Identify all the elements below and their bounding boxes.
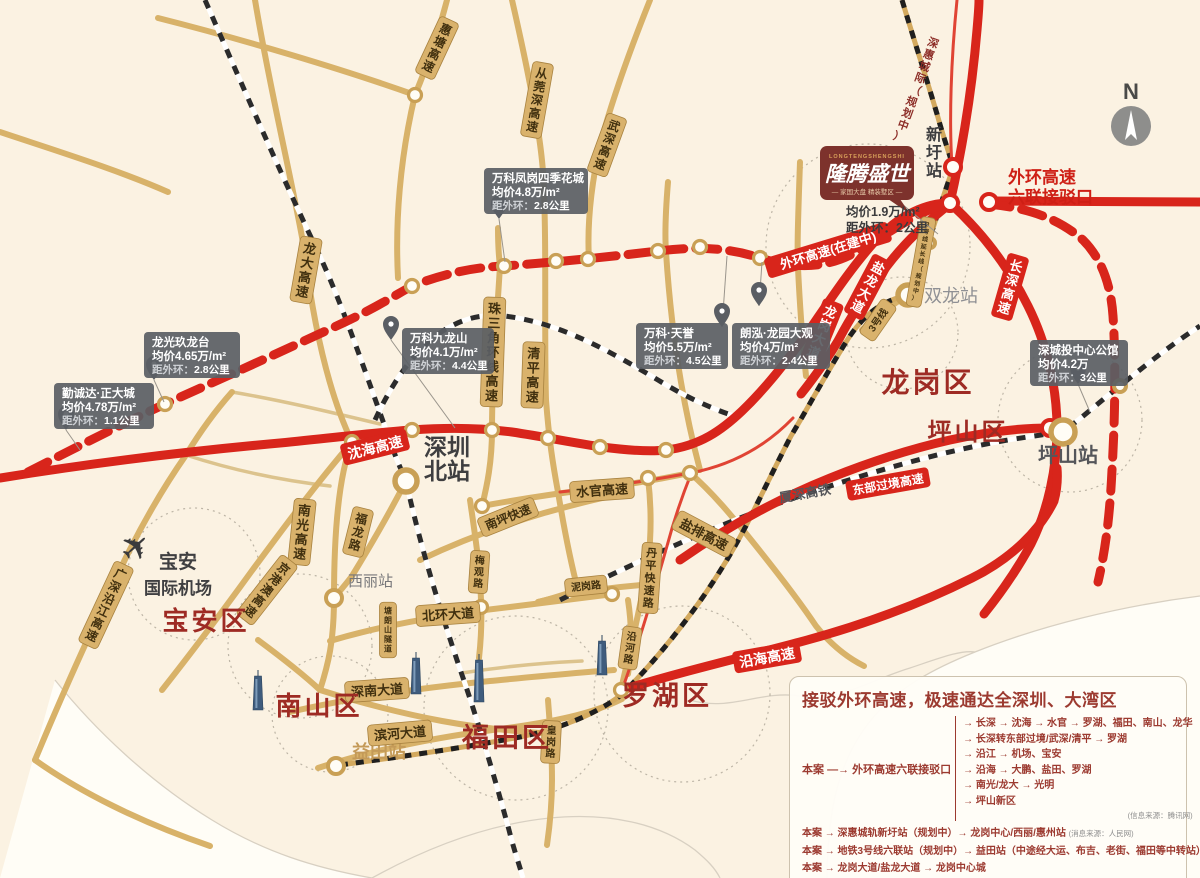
callout-distance: 距外环：2.4公里 xyxy=(740,354,818,367)
callout-distance: 距外环：1.1公里 xyxy=(62,414,140,427)
callout-distance: 距外环：4.5公里 xyxy=(644,354,722,367)
junction-ring xyxy=(486,424,499,437)
legend-branch-1: → 长深转东部过境/武深/清平 → 罗湖 xyxy=(963,732,1192,748)
callout-price: 均价4.78万/m² xyxy=(62,400,136,414)
skyscraper-body xyxy=(597,641,607,675)
road-label-武深高速: 武深高速 xyxy=(587,112,628,177)
road-label-清平高速: 清平高速 xyxy=(521,342,545,409)
junction-ring xyxy=(684,467,697,480)
callout-price: 均价4.1万/m² xyxy=(410,345,478,359)
district-label-罗湖区: 罗湖区 xyxy=(622,681,712,711)
legend-branches-source: (信息来源：腾讯网) xyxy=(963,810,1192,821)
callout-勤诚达·正大城: 勤诚达·正大城均价4.78万/m²距外环：1.1公里 xyxy=(54,383,154,450)
junction-ring xyxy=(476,500,489,513)
legend-hub-label: 本案 —→ 外环高速六联接驳口 xyxy=(802,761,951,777)
skyscraper-body xyxy=(474,660,484,702)
interchange-ring xyxy=(981,194,997,210)
compass-n-label: N xyxy=(1123,79,1139,104)
callout-distance: 距外环：2.8公里 xyxy=(492,199,570,212)
legend-hub: 本案 —→ 外环高速六联接驳口 → 长深 → 沈海 → 水官 → 罗湖、福田、南… xyxy=(802,716,1174,821)
project-logo: LONGTENGSHENGSHI隆腾盛世— 家国大盘 精装墅区 —均价1.9万/… xyxy=(820,146,938,235)
legend-route-note: (消息来源：人民网) xyxy=(1069,829,1134,838)
legend-branches: → 长深 → 沈海 → 水官 → 罗湖、福田、南山、龙华→ 长深转东部过境/武深… xyxy=(955,716,1192,821)
station-label: 站 xyxy=(926,161,942,180)
road-minor xyxy=(186,455,330,486)
road-expressway-red xyxy=(950,203,1057,614)
skyscraper-facet xyxy=(255,679,257,708)
interchange-label-line1: 外环高速 xyxy=(1008,167,1076,187)
road-label-沿海高速: 沿海高速 xyxy=(732,640,803,673)
district-label-福田区: 福田区 xyxy=(461,723,552,753)
district-label-坪山区: 坪山区 xyxy=(928,419,1009,446)
station-label: 双龙站 xyxy=(924,286,978,306)
junction-ring xyxy=(159,398,172,411)
road-minor xyxy=(232,392,380,424)
project-logo-cn: 隆腾盛世 xyxy=(825,162,912,186)
interchange-label-line2: 六联接驳口 xyxy=(1008,187,1093,207)
station-ring xyxy=(395,470,417,492)
junction-ring xyxy=(498,260,511,273)
station-label: 西丽站 xyxy=(348,573,393,590)
callout-price: 均价4.8万/m² xyxy=(492,185,560,199)
callout-distance: 距外环：3公里 xyxy=(1038,371,1107,384)
legend-route-0: 本案 → 深惠城轨新圩站（规划中）→ 龙岗中心/西丽/惠州站 (消息来源：人民网… xyxy=(802,825,1174,843)
callout-万科·天誉: 万科·天誉均价5.5万/m²距外环：4.5公里 xyxy=(636,256,730,369)
legend-hub-from: 本案 xyxy=(802,764,824,776)
skyscraper-facet xyxy=(476,663,478,700)
skyscraper-icon xyxy=(411,652,421,694)
junction-ring xyxy=(642,472,655,485)
station-益田站: 益田站 xyxy=(328,741,406,774)
project-logo-tagline: — 家国大盘 精装墅区 — xyxy=(832,187,903,196)
skyscraper-facet xyxy=(413,661,415,692)
callout-name: 万科·天誉 xyxy=(643,326,694,340)
road-label-龙大高速: 龙大高速 xyxy=(289,236,322,305)
legend-route-2: 本案 → 龙岗大道/盐龙大道 → 龙岗中心城 xyxy=(802,860,1174,878)
skyscraper-icon xyxy=(597,635,607,675)
road-label-梅观路: 梅观路 xyxy=(468,550,490,594)
road-label-text: 广深沿江高速 xyxy=(82,564,129,644)
legend-branch-5: → 坪山新区 xyxy=(963,794,1192,810)
callout-name: 万科九龙山 xyxy=(409,331,468,345)
legend-panel: 接驳外环高速，极速通达全深圳、大湾区 本案 —→ 外环高速六联接驳口 → 长深 … xyxy=(789,676,1187,878)
road-label-沿河路: 沿河路 xyxy=(618,626,643,671)
road-label-text: 塘朗山隧道 xyxy=(384,605,392,653)
junction-ring xyxy=(406,424,419,437)
road-label-广深沿江高速: 广深沿江高速 xyxy=(78,560,135,650)
project-distance: 距外环：2公里 xyxy=(846,220,928,235)
road-expressway-gold xyxy=(258,640,320,690)
callout-price: 均价4.2万 xyxy=(1038,357,1089,371)
location-pin-hole xyxy=(719,308,724,313)
station-label: 北站 xyxy=(424,458,470,484)
callout-name: 勤诚达·正大城 xyxy=(62,386,135,400)
legend-branch-0: → 长深 → 沈海 → 水官 → 罗湖、福田、南山、龙华 xyxy=(963,716,1192,732)
map-stage: 深圳北站西丽站益田站双龙站坪山站新圩站惠塘高速从莞深高速武深高速龙大高速珠三角环… xyxy=(0,0,1200,878)
junction-ring xyxy=(406,280,419,293)
callout-connector xyxy=(1078,384,1090,412)
legend-routes: 本案 → 深惠城轨新圩站（规划中）→ 龙岗中心/西丽/惠州站 (消息来源：人民网… xyxy=(802,825,1174,878)
location-pin-hole xyxy=(756,287,761,292)
skyscraper-body xyxy=(253,676,263,710)
junction-ring xyxy=(582,253,595,266)
callout-name: 万科凤岗四季花城 xyxy=(491,171,584,185)
road-label-塘朗山隧道: 塘朗山隧道 xyxy=(380,602,397,658)
road-label-惠塘高速: 惠塘高速 xyxy=(414,15,459,80)
station-ring xyxy=(945,159,961,175)
skyscraper-icon xyxy=(253,670,263,710)
road-label-南光高速: 南光高速 xyxy=(288,498,317,566)
legend-hub-arrow: —→ xyxy=(827,764,849,776)
location-pin-hole xyxy=(388,321,393,326)
junction-ring xyxy=(660,444,673,457)
callout-price: 均价4万/m² xyxy=(740,340,798,354)
legend-branch-4: → 南光/龙大 → 光明 xyxy=(963,778,1192,794)
junction-ring xyxy=(550,255,563,268)
road-label-text: 厦深高铁 xyxy=(778,482,832,506)
station-label: 圩 xyxy=(926,144,942,162)
road-red-minor xyxy=(951,0,957,166)
airport-name-line2: 国际机场 xyxy=(144,578,212,598)
road-expressway-gold xyxy=(0,132,168,192)
junction-ring xyxy=(409,89,422,102)
project-logo-en: LONGTENGSHENGSHI xyxy=(829,154,905,160)
station-label: 新 xyxy=(926,125,942,144)
project-price: 均价1.9万/m² xyxy=(846,204,920,219)
road-label-北环大道: 北环大道 xyxy=(415,601,480,626)
legend-branch-3: → 沿海 → 大鹏、盐田、罗湖 xyxy=(963,763,1192,779)
location-pin-icon xyxy=(383,316,399,340)
district-label-南山区: 南山区 xyxy=(275,691,362,721)
station-label: 深圳 xyxy=(424,434,470,460)
road-label-泥岗路: 泥岗路 xyxy=(564,575,608,597)
callout-price: 均价4.65万/m² xyxy=(152,349,226,363)
junction-ring xyxy=(594,441,607,454)
station-label: 坪山站 xyxy=(1038,443,1098,467)
road-label-水官高速: 水官高速 xyxy=(569,477,634,502)
skyscraper-icon xyxy=(474,654,484,702)
callout-name: 龙光玖龙台 xyxy=(151,335,210,349)
junction-ring xyxy=(652,245,665,258)
road-label-text: 清平高速 xyxy=(525,346,540,405)
road-label-长深高速: 长深高速 xyxy=(990,252,1029,322)
location-pin-icon xyxy=(751,282,767,306)
station-ring xyxy=(326,590,342,606)
junction-ring xyxy=(694,241,707,254)
skyscraper-body xyxy=(411,658,421,694)
interchange-ring xyxy=(942,195,958,211)
station-ring xyxy=(1051,420,1075,444)
airport-name-line1: 宝安 xyxy=(159,550,197,573)
compass: N xyxy=(1111,79,1151,146)
station-ring xyxy=(328,758,344,774)
callout-name: 朗泓·龙园大观 xyxy=(740,326,813,340)
legend-title: 接驳外环高速，极速通达全深圳、大湾区 xyxy=(802,686,1174,711)
legend-branch-2: → 沿江 → 机场、宝安 xyxy=(963,747,1192,763)
callout-name: 深城投中心公馆 xyxy=(1038,343,1119,357)
legend-route-1: 本案 → 地铁3号线六联站（规划中）→ 益田站（中途经大运、布吉、老街、福田等中… xyxy=(802,843,1174,861)
road-label-丹平快速路: 丹平快速路 xyxy=(638,542,663,614)
road-expressway-gold xyxy=(158,18,415,95)
skyscraper-facet xyxy=(599,644,601,673)
callout-distance: 距外环：2.8公里 xyxy=(152,363,230,376)
district-label-宝安区: 宝安区 xyxy=(162,606,249,636)
junction-ring xyxy=(542,432,555,445)
callout-distance: 距外环：4.4公里 xyxy=(410,359,488,372)
legend-hub-to: 外环高速六联接驳口 xyxy=(852,764,951,776)
district-label-龙岗区: 龙岗区 xyxy=(881,367,974,398)
road-label-厦深高铁: 厦深高铁 xyxy=(778,482,832,506)
callout-price: 均价5.5万/m² xyxy=(644,340,712,354)
